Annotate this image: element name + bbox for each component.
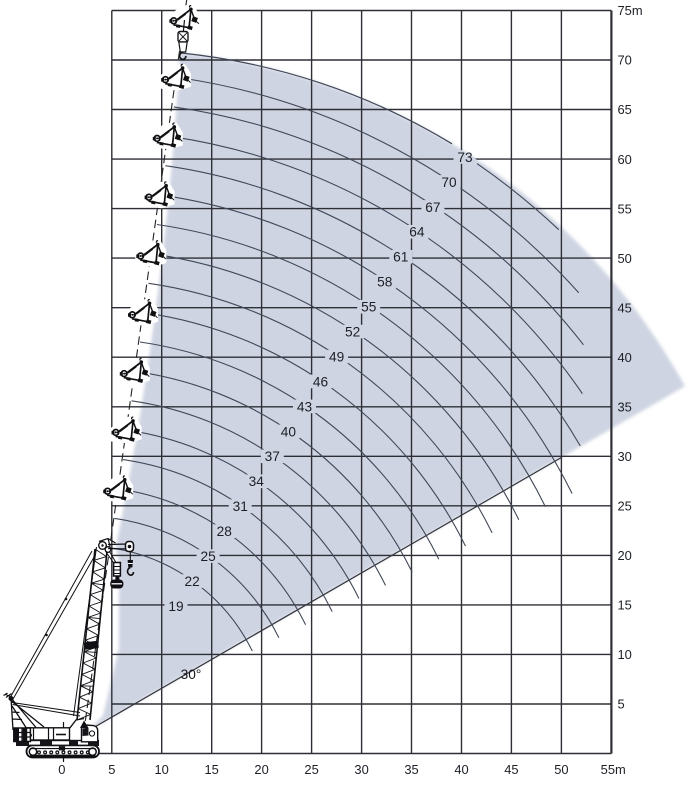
svg-text:37: 37	[265, 449, 280, 464]
svg-text:70: 70	[441, 175, 457, 190]
svg-text:52: 52	[345, 325, 360, 340]
svg-text:70: 70	[618, 53, 632, 68]
svg-text:50: 50	[618, 251, 632, 266]
svg-text:65: 65	[618, 102, 632, 117]
svg-text:60: 60	[618, 152, 632, 167]
svg-text:67: 67	[425, 200, 440, 215]
svg-text:61: 61	[393, 250, 408, 265]
svg-text:10: 10	[155, 762, 169, 777]
svg-text:45: 45	[618, 300, 632, 315]
svg-text:73: 73	[457, 150, 473, 165]
svg-text:55: 55	[618, 201, 632, 216]
svg-text:30: 30	[618, 449, 632, 464]
svg-text:22: 22	[184, 574, 199, 589]
svg-text:58: 58	[377, 275, 393, 290]
svg-text:34: 34	[249, 474, 265, 489]
svg-text:75m: 75m	[618, 3, 643, 18]
svg-text:5: 5	[618, 697, 625, 712]
svg-text:49: 49	[329, 349, 344, 364]
svg-text:5: 5	[108, 762, 115, 777]
svg-text:25: 25	[200, 549, 216, 564]
svg-text:30°: 30°	[181, 667, 202, 682]
svg-text:43: 43	[297, 399, 313, 414]
svg-text:40: 40	[454, 762, 468, 777]
svg-text:35: 35	[618, 400, 632, 415]
svg-text:15: 15	[618, 598, 632, 613]
svg-text:55: 55	[361, 300, 377, 315]
svg-text:31: 31	[233, 499, 248, 514]
svg-text:10: 10	[618, 647, 632, 662]
svg-text:25: 25	[618, 499, 632, 514]
svg-text:40: 40	[618, 350, 632, 365]
svg-text:19: 19	[168, 599, 183, 614]
svg-text:15: 15	[205, 762, 219, 777]
svg-text:35: 35	[404, 762, 418, 777]
svg-text:20: 20	[618, 548, 632, 563]
svg-text:64: 64	[409, 225, 425, 240]
svg-text:20: 20	[254, 762, 268, 777]
svg-text:50: 50	[554, 762, 568, 777]
svg-text:40: 40	[281, 424, 297, 439]
svg-text:0: 0	[58, 762, 65, 777]
svg-text:55m: 55m	[601, 762, 626, 777]
svg-text:28: 28	[217, 524, 233, 539]
svg-text:25: 25	[304, 762, 318, 777]
svg-text:30: 30	[354, 762, 368, 777]
svg-text:46: 46	[313, 374, 329, 389]
svg-text:45: 45	[504, 762, 518, 777]
